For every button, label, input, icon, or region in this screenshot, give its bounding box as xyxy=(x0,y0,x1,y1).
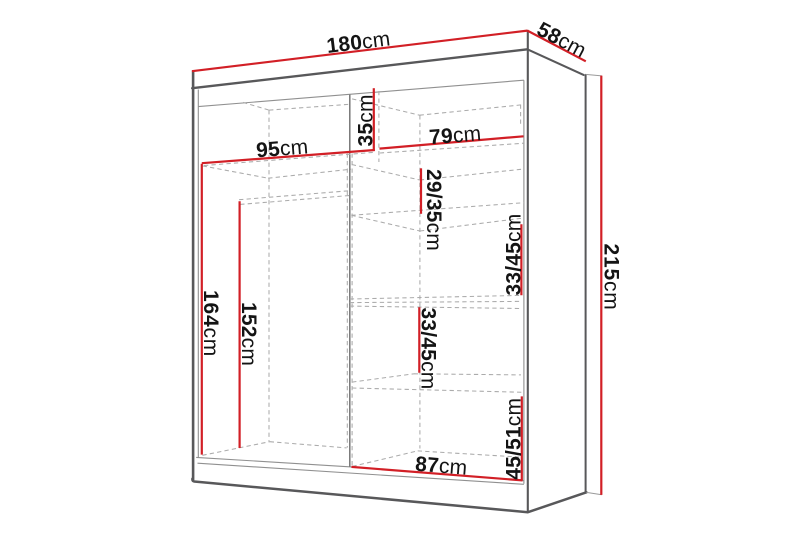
svg-text:45/51cm: 45/51cm xyxy=(503,398,526,480)
svg-text:164cm: 164cm xyxy=(199,290,222,357)
svg-text:33/45cm: 33/45cm xyxy=(417,308,440,390)
svg-text:35cm: 35cm xyxy=(355,94,378,146)
svg-text:95cm: 95cm xyxy=(255,135,309,162)
svg-text:29/35cm: 29/35cm xyxy=(422,169,445,251)
svg-text:152cm: 152cm xyxy=(237,302,260,366)
svg-text:79cm: 79cm xyxy=(428,122,482,149)
svg-text:87cm: 87cm xyxy=(414,453,468,480)
svg-text:215cm: 215cm xyxy=(600,244,623,311)
svg-text:33/45cm: 33/45cm xyxy=(502,214,525,296)
